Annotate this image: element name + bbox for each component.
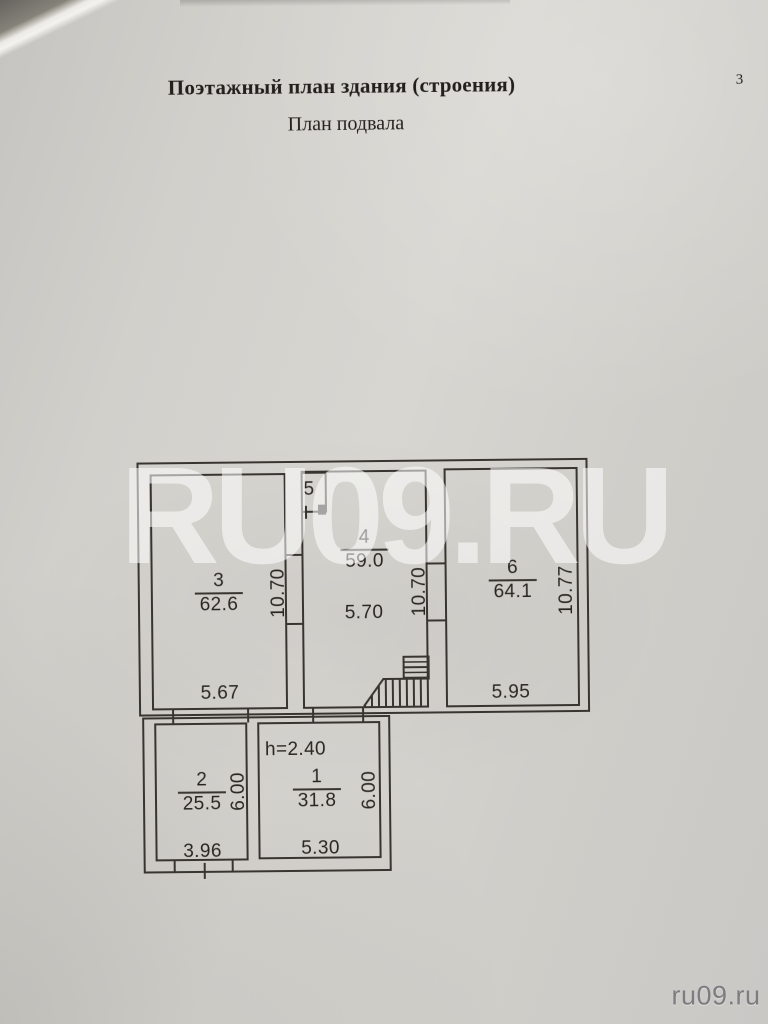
wall-tie [247, 708, 249, 722]
dim-room6-width: 5.95 [491, 681, 530, 703]
room-2-area: 25.5 [178, 793, 226, 815]
ru09-watermark: RU09.RU [120, 447, 668, 585]
photographed-document: Поэтажный план здания (строения) План по… [0, 0, 768, 1024]
wall-tie [232, 861, 234, 873]
wall-tie [174, 861, 176, 873]
page-subtitle: План подвала [288, 112, 405, 136]
dim-room4-width: 5.70 [345, 602, 384, 624]
entrance-door-tick [204, 863, 206, 879]
wall-tie [362, 707, 364, 721]
wall-tie [287, 623, 302, 625]
room-1-area: 31.8 [293, 790, 341, 812]
room-2-number: 2 [178, 770, 226, 793]
ru09-site-credit: ru09.ru [671, 981, 760, 1012]
wall-tie [428, 619, 445, 621]
ceiling-height-note: h=2.40 [265, 739, 326, 762]
room-1-number: 1 [293, 767, 341, 790]
page-number: 3 [736, 72, 744, 89]
dim-room1-width: 5.30 [301, 837, 340, 859]
wall-tie [312, 708, 314, 722]
dim-room3-width: 5.67 [200, 683, 239, 705]
room-3-area: 62.6 [195, 594, 243, 616]
page-title: Поэтажный план здания (строения) [168, 72, 516, 101]
dim-room2-width: 3.96 [183, 841, 222, 863]
dim-room1-depth: 6.00 [359, 771, 381, 810]
room-2-label: 2 25.5 [178, 770, 226, 815]
room-1-label: 1 31.8 [293, 767, 341, 812]
wall-tie [172, 709, 174, 723]
staircase-upper-flight [403, 656, 430, 680]
dim-room2-depth: 6.00 [228, 772, 250, 811]
